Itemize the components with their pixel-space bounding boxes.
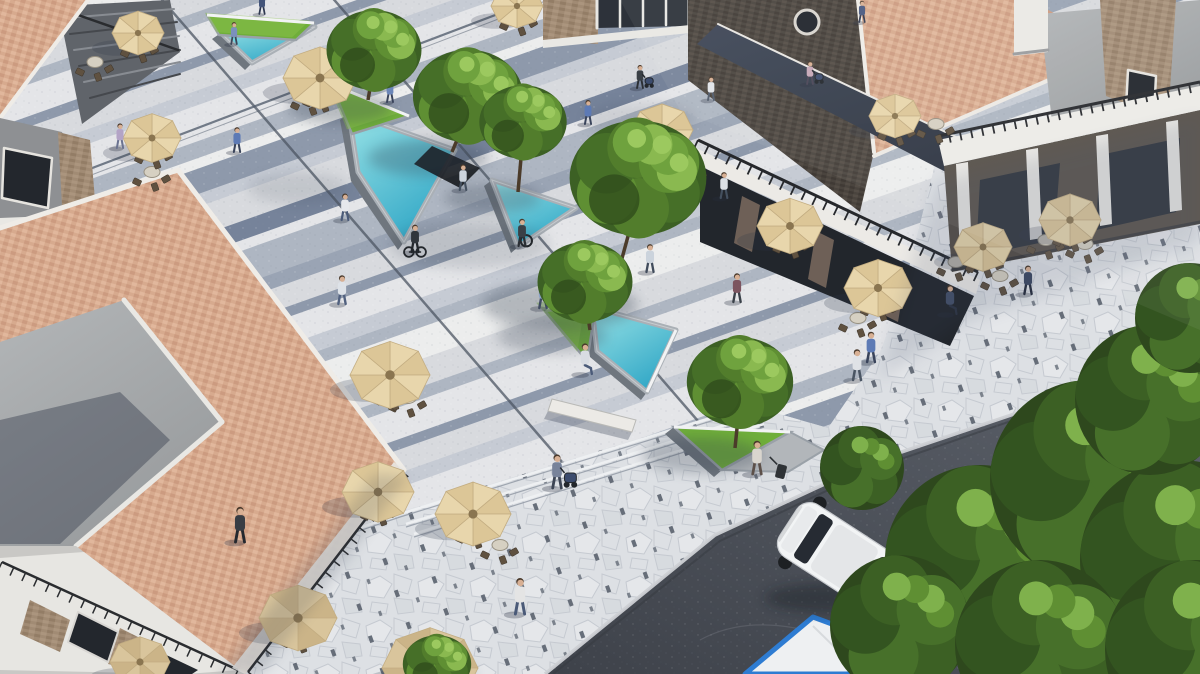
aerial-plaza-rendering	[0, 0, 1200, 674]
rendered-scene-viewport: Aerial 3D architectural rendering of a p…	[0, 0, 1200, 674]
